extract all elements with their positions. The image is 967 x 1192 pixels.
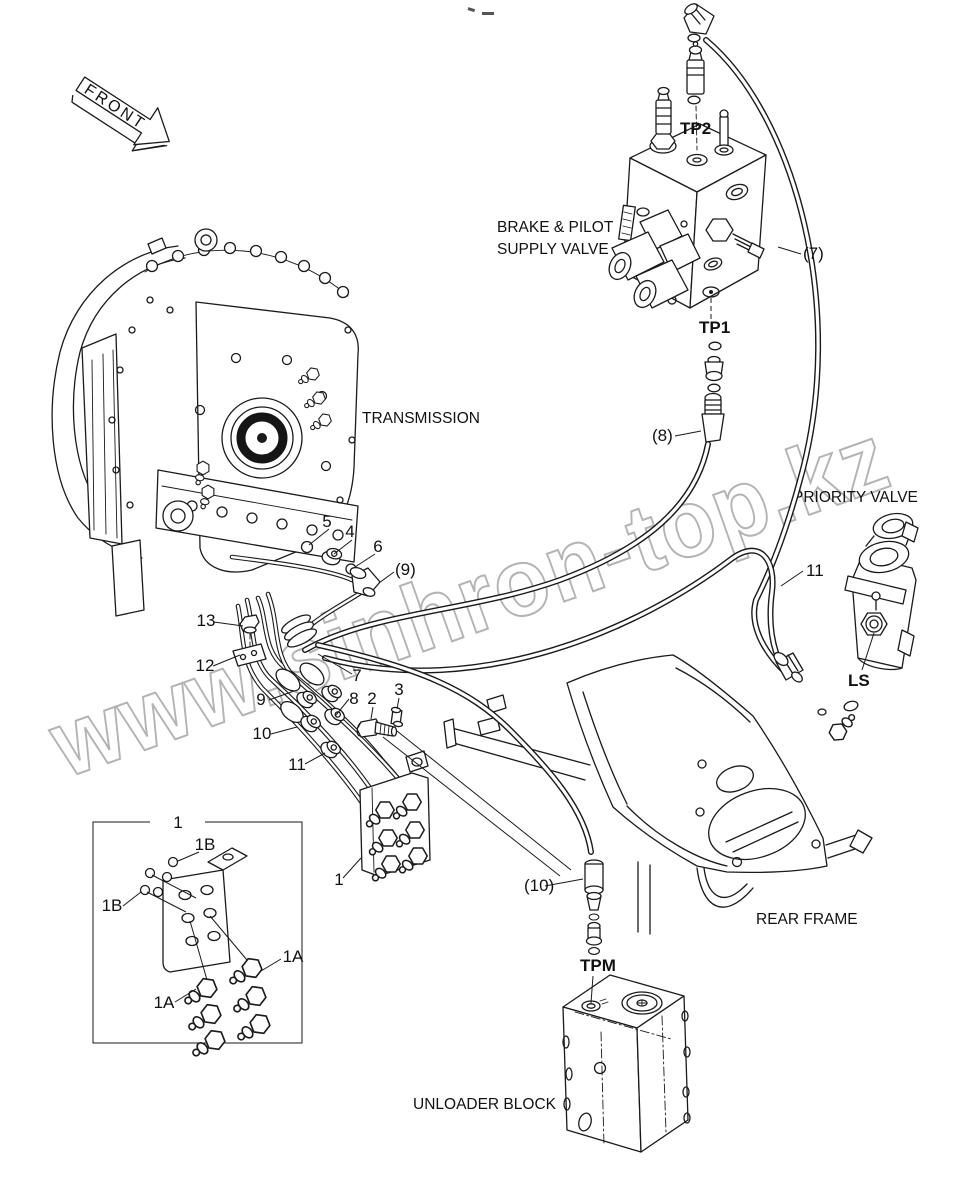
callout-9: 9 bbox=[256, 690, 265, 709]
unloader-block: UNLOADER BLOCK bbox=[413, 975, 690, 1152]
diagram-canvas: www.sinhron-top.kz FRONT bbox=[0, 0, 967, 1192]
callout-3: 3 bbox=[394, 680, 403, 699]
priority-valve-label: PRIORITY VALVE bbox=[793, 489, 918, 506]
callout-1b-top: 1B bbox=[195, 835, 216, 854]
callout-7-hose: (7) bbox=[803, 244, 824, 263]
transmission: TRANSMISSION bbox=[52, 229, 480, 616]
callout-8-hose: (8) bbox=[652, 426, 673, 445]
port-label-tp2: TP2 bbox=[680, 119, 711, 138]
front-direction-arrow: FRONT bbox=[65, 65, 181, 165]
callout-7: 7 bbox=[352, 666, 361, 685]
callout-1b-left: 1B bbox=[102, 896, 123, 915]
callout-5: 5 bbox=[322, 512, 331, 531]
unloader-block-label: UNLOADER BLOCK bbox=[413, 1096, 557, 1113]
rear-frame: REAR FRAME bbox=[444, 655, 872, 934]
port-label-tpm: TPM bbox=[580, 956, 616, 975]
front-label: FRONT bbox=[81, 81, 149, 133]
port-label-tp1: TP1 bbox=[699, 318, 730, 337]
manifold-block bbox=[360, 751, 430, 881]
transmission-label: TRANSMISSION bbox=[362, 410, 480, 427]
callout-12: 12 bbox=[196, 656, 215, 675]
callout-1-inset: 1 bbox=[173, 813, 182, 832]
parts-diagram-page: www.sinhron-top.kz FRONT bbox=[0, 0, 967, 1192]
print-artifacts bbox=[468, 7, 494, 15]
callout-8: 8 bbox=[349, 689, 358, 708]
callout-11: 11 bbox=[288, 755, 306, 774]
brake-pilot-supply-valve: BRAKE & PILOT SUPPLY VALVE TP2 bbox=[497, 2, 766, 311]
callout-1a-right: 1A bbox=[283, 947, 304, 966]
callout-2: 2 bbox=[367, 689, 376, 708]
port-label-ls: LS bbox=[848, 671, 870, 690]
brake-pilot-label-line1: BRAKE & PILOT bbox=[497, 219, 614, 236]
callout-1: 1 bbox=[334, 870, 343, 889]
callout-1a-left: 1A bbox=[154, 993, 175, 1012]
brake-pilot-label-line2: SUPPLY VALVE bbox=[497, 241, 609, 258]
tp1-fitting-stack: TP1 bbox=[699, 298, 730, 442]
callout-11-hose: 11 bbox=[806, 561, 824, 580]
callout-6: 6 bbox=[373, 537, 382, 556]
callout-9-hose: (9) bbox=[395, 560, 416, 579]
rear-frame-label: REAR FRAME bbox=[756, 911, 858, 928]
callout-4: 4 bbox=[345, 522, 354, 541]
callout-13: 13 bbox=[197, 611, 216, 630]
ls-fitting bbox=[828, 714, 856, 740]
inset-fitting-cluster-right bbox=[230, 957, 272, 1044]
callout-10-hose: (10) bbox=[524, 876, 554, 895]
callout-10: 10 bbox=[253, 724, 272, 743]
inset-fitting-cluster-left bbox=[185, 977, 227, 1060]
